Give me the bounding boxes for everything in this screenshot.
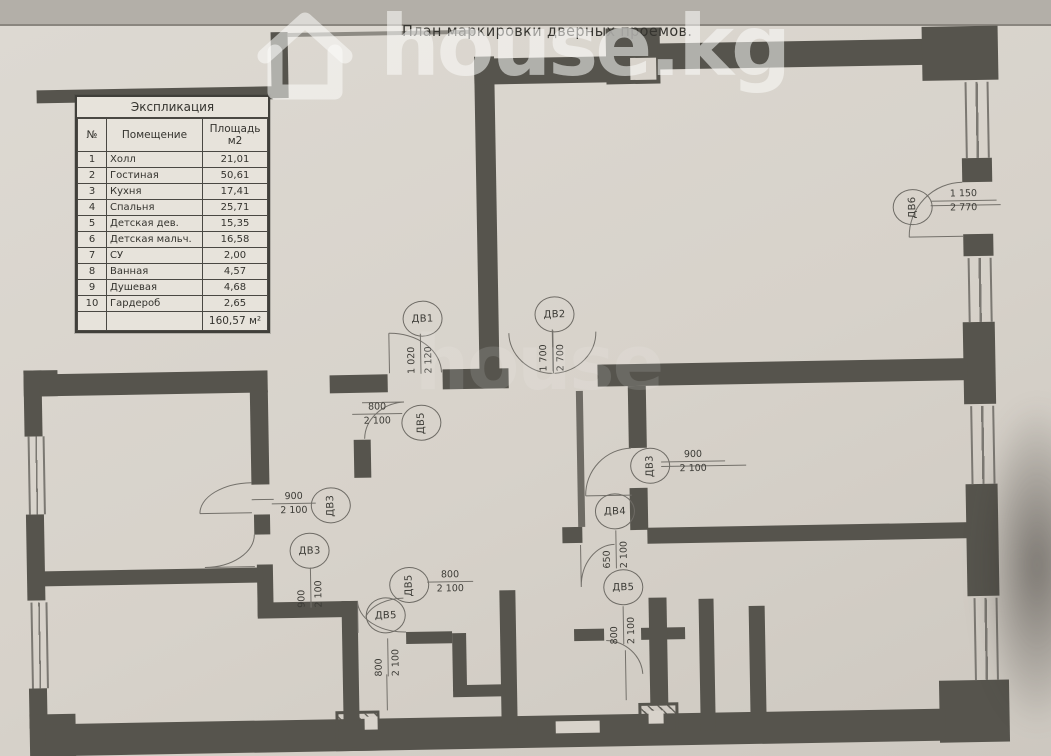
cell-room: Душевая bbox=[107, 280, 203, 296]
wall bbox=[963, 322, 996, 405]
wall bbox=[963, 234, 993, 257]
door-label: ДВ5 bbox=[416, 412, 427, 434]
door-height: 2 100 bbox=[680, 463, 707, 474]
table-row: 7СУ2,00 bbox=[78, 248, 268, 264]
wall bbox=[576, 391, 585, 527]
cell-number: 3 bbox=[78, 184, 107, 200]
door-label: ДВ4 bbox=[604, 506, 626, 517]
door-label: ДВ6 bbox=[907, 196, 918, 218]
door-dims: 8002 100 bbox=[374, 638, 401, 676]
col-area: Площадь м2 bbox=[203, 119, 268, 152]
cell-number: 7 bbox=[78, 248, 107, 264]
table-row: 3Кухня17,41 bbox=[78, 184, 268, 200]
cell-area: 15,35 bbox=[203, 216, 268, 232]
door-dims: 9002 100 bbox=[661, 448, 725, 475]
door-width: 900 bbox=[297, 568, 307, 608]
table-row: 2Гостиная50,61 bbox=[78, 168, 268, 184]
wall bbox=[698, 599, 715, 731]
watermark-echo: house bbox=[415, 318, 662, 407]
table-total-row: 160,57 м² bbox=[78, 312, 268, 331]
cell-number: 4 bbox=[78, 200, 107, 216]
wall bbox=[453, 684, 505, 697]
door-dims: 9002 100 bbox=[297, 567, 324, 607]
door-label: ДВ5 bbox=[404, 574, 415, 596]
door-dims: 9002 100 bbox=[272, 491, 316, 518]
watermark-brand: house.kg bbox=[380, 0, 788, 92]
table-row: 4Спальня25,71 bbox=[78, 200, 268, 216]
window bbox=[965, 82, 990, 158]
table-row: 1Холл21,01 bbox=[78, 152, 268, 168]
cell-area: 21,01 bbox=[203, 152, 268, 168]
table-row: 9Душевая4,68 bbox=[78, 280, 268, 296]
cell-room: Гардероб bbox=[107, 296, 203, 312]
cell-number: 10 bbox=[78, 296, 107, 312]
table-row: 8Ванная4,57 bbox=[78, 264, 268, 280]
door-mark-circle: ДВ4 bbox=[595, 493, 636, 530]
door-height: 2 100 bbox=[313, 567, 323, 607]
cell-room: Кухня bbox=[107, 184, 203, 200]
cell-room: Ванная bbox=[107, 264, 203, 280]
cell-number: 2 bbox=[78, 168, 107, 184]
wall-niche bbox=[556, 721, 600, 734]
window bbox=[30, 602, 48, 688]
door-width: 800 bbox=[374, 638, 384, 676]
wall bbox=[562, 527, 582, 543]
door-width: 900 bbox=[684, 449, 702, 460]
door-mark-circle: ДВ5 bbox=[603, 569, 644, 606]
wall bbox=[354, 440, 372, 478]
wall bbox=[962, 158, 992, 183]
wall bbox=[452, 633, 467, 691]
door-label: ДВ3 bbox=[325, 494, 336, 516]
door-dims: 8002 100 bbox=[427, 569, 473, 596]
wall bbox=[46, 709, 946, 756]
wall bbox=[43, 568, 263, 587]
door-dims: 8002 100 bbox=[610, 606, 637, 644]
cell-area: 17,41 bbox=[203, 184, 268, 200]
door-label: ДВ3 bbox=[299, 545, 321, 556]
door-mark-circle: ДВ5 bbox=[389, 567, 430, 604]
door-width: 1 150 bbox=[950, 188, 977, 199]
duct-opening bbox=[648, 711, 663, 724]
door-height: 2 770 bbox=[950, 202, 977, 213]
wall bbox=[749, 606, 767, 714]
door-label: ДВ5 bbox=[375, 610, 397, 621]
cell-room: Детская мальч. bbox=[107, 232, 203, 248]
wall bbox=[254, 514, 270, 534]
door-height: 2 100 bbox=[619, 530, 629, 568]
door-label: ДВ5 bbox=[612, 582, 634, 593]
door-dims: 1 1502 770 bbox=[930, 188, 996, 215]
cell-area: 2,00 bbox=[203, 248, 268, 264]
cell-number: 6 bbox=[78, 232, 107, 248]
expl-body: 1Холл21,012Гостиная50,613Кухня17,414Спал… bbox=[78, 152, 268, 312]
door-height: 2 100 bbox=[280, 505, 307, 516]
cell-area: 50,61 bbox=[203, 168, 268, 184]
cell-area: 16,58 bbox=[203, 232, 268, 248]
wall bbox=[648, 597, 668, 705]
door-width: 650 bbox=[602, 530, 612, 568]
table-row: 10Гардероб2,65 bbox=[78, 296, 268, 312]
wall bbox=[647, 522, 971, 544]
total-area: 160,57 м² bbox=[203, 312, 268, 331]
door-dims: 8002 100 bbox=[352, 401, 402, 428]
scanned-floor-plan: ДВ1 1 0202 120 ДВ2 1 7002 700 ДВ5 8002 1… bbox=[0, 0, 1051, 756]
wall bbox=[406, 631, 452, 644]
cell-area: 4,68 bbox=[203, 280, 268, 296]
door-mark-circle: ДВ6 bbox=[892, 189, 933, 226]
cell-number: 9 bbox=[78, 280, 107, 296]
cell-number: 8 bbox=[78, 264, 107, 280]
door-height: 2 100 bbox=[626, 606, 636, 644]
table-row: 5Детская дев.15,35 bbox=[78, 216, 268, 232]
wall bbox=[250, 390, 270, 484]
door-mark-circle: ДВ5 bbox=[401, 404, 442, 441]
duct-opening bbox=[365, 717, 378, 730]
duct-shaft bbox=[638, 702, 679, 733]
wall bbox=[574, 629, 604, 642]
door-height: 2 100 bbox=[364, 416, 391, 427]
cell-room: Детская дев. bbox=[107, 216, 203, 232]
cell-area: 4,57 bbox=[203, 264, 268, 280]
cell-area: 25,71 bbox=[203, 200, 268, 216]
cell-room: Холл bbox=[107, 152, 203, 168]
wall bbox=[922, 26, 999, 81]
wall bbox=[330, 374, 388, 393]
cell-number: 1 bbox=[78, 152, 107, 168]
table-row: 6Детская мальч.16,58 bbox=[78, 232, 268, 248]
door-height: 2 100 bbox=[437, 583, 464, 594]
window bbox=[28, 436, 46, 514]
wall bbox=[26, 514, 45, 600]
cell-room: Гостиная bbox=[107, 168, 203, 184]
col-room: Помещение bbox=[107, 119, 203, 152]
wall bbox=[39, 370, 267, 396]
door-mark-circle: ДВ5 bbox=[365, 597, 406, 634]
col-number: № bbox=[78, 119, 107, 152]
door-mark-circle: ДВ3 bbox=[289, 532, 330, 569]
door-mark-circle: ДВ3 bbox=[310, 487, 351, 524]
door-width: 800 bbox=[441, 569, 459, 580]
explication-table: Экспликация № Помещение Площадь м2 1Холл… bbox=[75, 95, 270, 333]
door-width: 900 bbox=[284, 491, 302, 502]
wall bbox=[499, 590, 518, 734]
door-height: 2 100 bbox=[391, 638, 401, 676]
window bbox=[968, 258, 993, 322]
house-logo-icon bbox=[250, 0, 360, 106]
table-title: Экспликация bbox=[77, 97, 268, 118]
table-header-row: № Помещение Площадь м2 bbox=[78, 119, 268, 152]
door-width: 800 bbox=[368, 401, 386, 412]
duct-shaft bbox=[335, 711, 380, 752]
door-width: 800 bbox=[610, 606, 620, 644]
cell-room: СУ bbox=[107, 248, 203, 264]
cell-number: 5 bbox=[78, 216, 107, 232]
door-label: ДВ3 bbox=[644, 455, 655, 477]
wall bbox=[341, 601, 359, 721]
cell-area: 2,65 bbox=[203, 296, 268, 312]
door-dims: 6502 100 bbox=[602, 530, 629, 568]
cell-room: Спальня bbox=[107, 200, 203, 216]
